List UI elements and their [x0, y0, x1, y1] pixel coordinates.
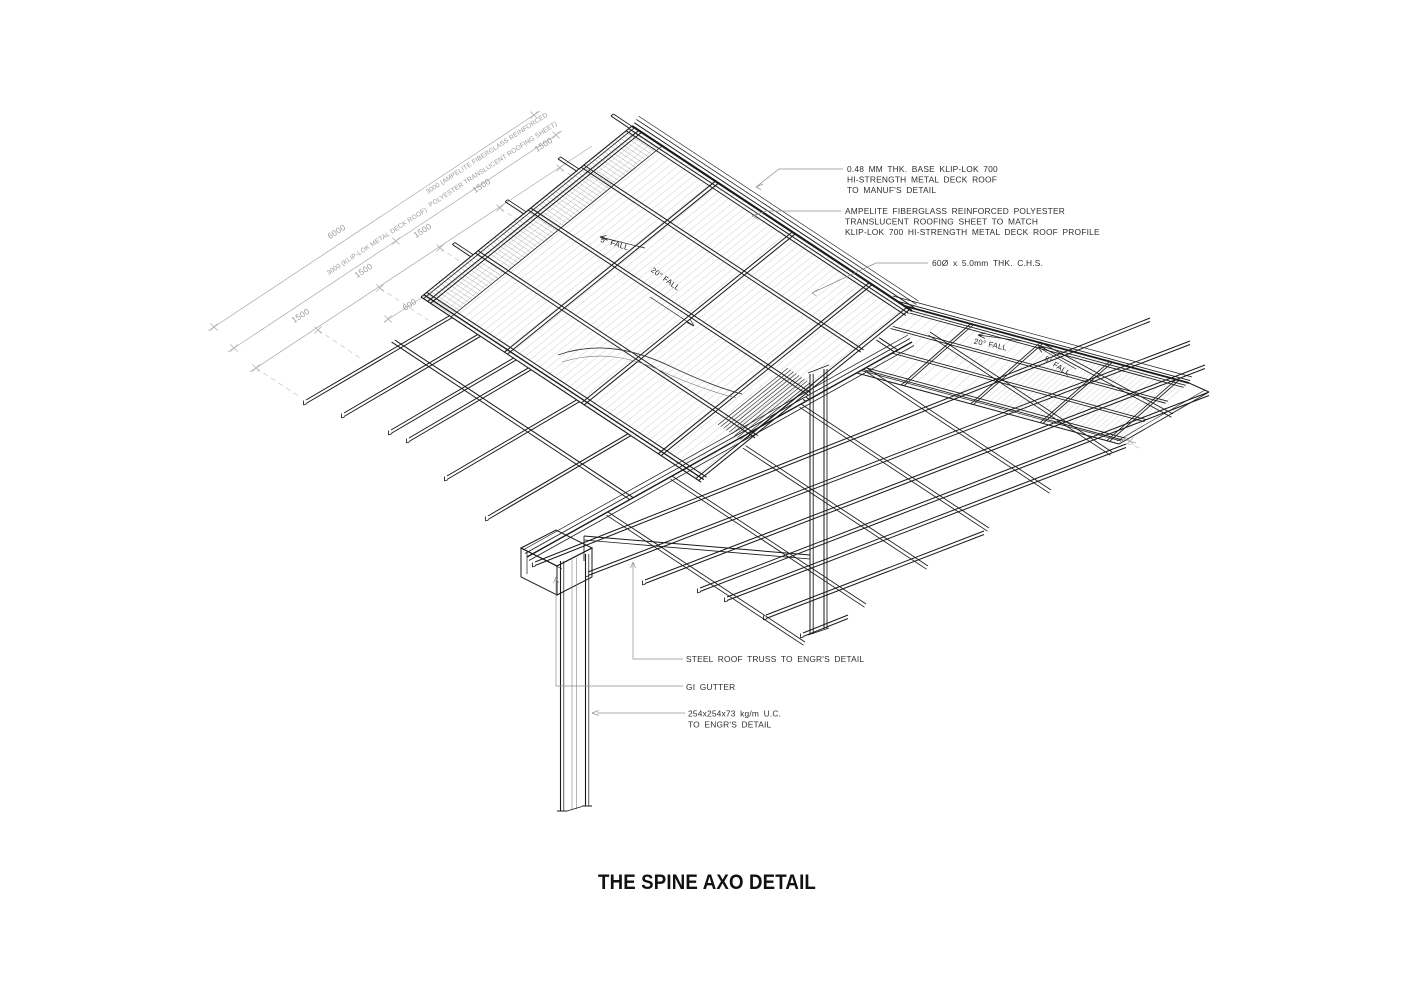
drawing-canvas: 1500 1500 1500 1500 1500 600 6000 3000 (…: [0, 0, 1415, 1000]
dim-600: 600: [401, 296, 419, 312]
note-translucent-line-2: TRANSLUCENT ROOFING SHEET TO MATCH: [845, 217, 1038, 227]
note-truss: STEEL ROOF TRUSS TO ENGR'S DETAIL: [686, 654, 864, 664]
dim-bay-4: 1500: [352, 261, 374, 280]
note-metal-deck-line-3: TO MANUF'S DETAIL: [847, 185, 936, 195]
drawing-title: THE SPINE AXO DETAIL: [598, 870, 816, 894]
right-canopy-rafter-tips: [533, 563, 804, 639]
dim-bay-3: 1500: [411, 221, 433, 240]
dim-span-kliplok: 3000 (KLIP-LOK METAL DECK ROOF): [326, 207, 429, 277]
note-gutter: GI GUTTER: [686, 682, 735, 692]
note-chs: 60Ø x 5.0mm THK. C.H.S.: [932, 258, 1043, 268]
note-metal-deck-line-2: HI-STRENGTH METAL DECK ROOF: [847, 175, 997, 185]
dim-span-ampelite-2: POLYESTER TRANSLUCENT ROOFING SHEET): [428, 121, 559, 209]
axo-detail-sheet: 1500 1500 1500 1500 1500 600 6000 3000 (…: [0, 0, 1415, 1000]
note-translucent-line-1: AMPELITE FIBERGLASS REINFORCED POLYESTER: [845, 206, 1065, 216]
note-translucent-line-3: KLIP-LOK 700 HI-STRENGTH METAL DECK ROOF…: [845, 227, 1100, 237]
note-metal-deck-line-1: 0.48 MM THK. BASE KLIP-LOK 700: [847, 164, 998, 174]
note-column-line-2: TO ENGR'S DETAIL: [688, 720, 772, 730]
note-column-line-1: 254x254x73 kg/m U.C.: [688, 709, 781, 719]
dim-6000: 6000: [325, 222, 347, 241]
